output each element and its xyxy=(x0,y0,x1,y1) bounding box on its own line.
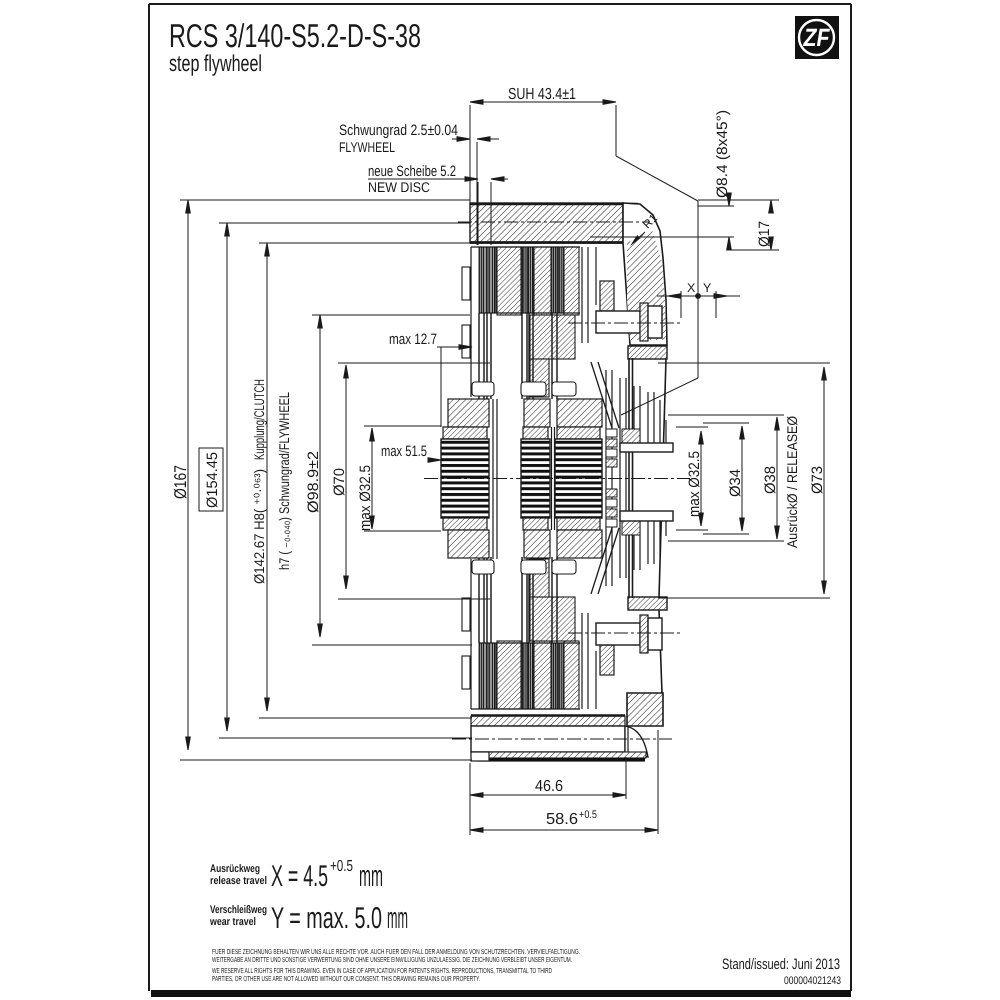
svg-text:Ø167: Ø167 xyxy=(171,465,190,499)
svg-text:mm: mm xyxy=(359,860,383,893)
svg-text:max Ø32.5: max Ø32.5 xyxy=(357,465,374,531)
svg-text:Schwungrad 2.5±0.04: Schwungrad 2.5±0.04 xyxy=(339,122,458,139)
svg-text:h7 ( ₋₀.₀₄₀): h7 ( ₋₀.₀₄₀) xyxy=(276,517,292,570)
svg-text:Schwungrad/FLYWHEEL: Schwungrad/FLYWHEEL xyxy=(276,392,292,514)
svg-text:step flywheel: step flywheel xyxy=(169,50,262,76)
svg-text:NEW DISC: NEW DISC xyxy=(368,179,430,195)
svg-text:FLYWHEEL: FLYWHEEL xyxy=(339,139,395,155)
svg-text:Stand/issued: Juni 2013: Stand/issued: Juni 2013 xyxy=(722,956,840,973)
svg-text:Ø154.45: Ø154.45 xyxy=(204,452,221,508)
svg-text:X: X xyxy=(687,281,696,295)
svg-text:Verschleißweg: Verschleißweg xyxy=(210,904,267,916)
svg-text:Ø17: Ø17 xyxy=(756,221,773,247)
svg-text:46.6: 46.6 xyxy=(535,778,563,795)
svg-text:Kupplung/CLUTCH: Kupplung/CLUTCH xyxy=(251,379,267,460)
svg-text:RCS 3/140-S5.2-D-S-38: RCS 3/140-S5.2-D-S-38 xyxy=(169,17,421,54)
svg-text:Ø8.4 (8x45°): Ø8.4 (8x45°) xyxy=(714,110,731,198)
svg-text:+0.5: +0.5 xyxy=(579,809,597,821)
svg-text:SUH 43.4±1: SUH 43.4±1 xyxy=(508,86,576,103)
svg-text:Ø38: Ø38 xyxy=(762,466,779,494)
svg-text:Ø73: Ø73 xyxy=(809,466,826,494)
svg-text:wear travel: wear travel xyxy=(209,916,256,928)
svg-text:58.6: 58.6 xyxy=(546,811,578,828)
svg-text:max 51.5: max 51.5 xyxy=(381,443,427,460)
svg-text:Ø70: Ø70 xyxy=(331,468,348,496)
svg-text:Ausrückweg: Ausrückweg xyxy=(210,863,260,875)
svg-text:ZF: ZF xyxy=(803,24,830,52)
svg-text:Ø34: Ø34 xyxy=(727,469,744,497)
svg-text:mm: mm xyxy=(387,902,408,935)
svg-text:neue Scheibe 5.2: neue Scheibe 5.2 xyxy=(368,163,456,180)
svg-text:AusrückØ / RELEASEØ: AusrückØ / RELEASEØ xyxy=(784,416,800,548)
svg-text:WEITERGABE AN DRITTE UND SONST: WEITERGABE AN DRITTE UND SONSTIGE VERWER… xyxy=(212,955,572,964)
svg-text:Ø98.9±2: Ø98.9±2 xyxy=(305,451,322,513)
svg-text:max 12.7: max 12.7 xyxy=(389,331,437,348)
svg-text:max Ø32.5: max Ø32.5 xyxy=(686,451,703,517)
svg-text:X = 4.5: X = 4.5 xyxy=(271,860,328,893)
svg-text:PARTIES, OR OTHER USE ARE NOT: PARTIES, OR OTHER USE ARE NOT ALLOWED WI… xyxy=(212,974,480,983)
svg-text:000004021243: 000004021243 xyxy=(784,975,841,987)
svg-text:release travel: release travel xyxy=(210,875,267,887)
svg-text:Y: Y xyxy=(703,281,712,295)
svg-text:Ø142.67 H8( ⁺⁰·⁰⁶³): Ø142.67 H8( ⁺⁰·⁰⁶³) xyxy=(251,469,267,584)
svg-text:+0.5: +0.5 xyxy=(330,858,353,875)
svg-text:Y = max. 5.0: Y = max. 5.0 xyxy=(271,902,382,935)
